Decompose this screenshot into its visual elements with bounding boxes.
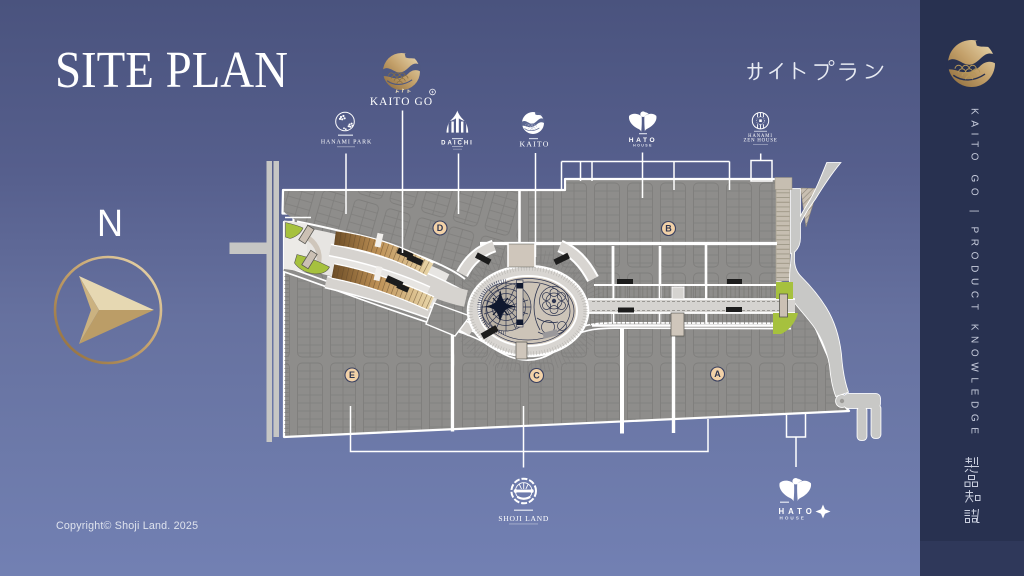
svg-text:HOUSE: HOUSE — [633, 144, 653, 148]
svg-text:C: C — [533, 371, 540, 381]
svg-text:N: N — [97, 203, 123, 245]
svg-text:SITE PLAN: SITE PLAN — [55, 42, 288, 99]
svg-text:SHOJI LAND: SHOJI LAND — [498, 514, 549, 523]
svg-text:D: D — [437, 223, 444, 233]
svg-text:KAITO: KAITO — [519, 140, 549, 149]
svg-text:ZEN HOUSE: ZEN HOUSE — [744, 139, 778, 144]
svg-text:B: B — [665, 224, 672, 234]
svg-text:Copyright© Shoji Land. 2025: Copyright© Shoji Land. 2025 — [56, 520, 198, 532]
svg-text:HANAMI PARK: HANAMI PARK — [321, 140, 372, 146]
svg-text:E: E — [349, 370, 355, 380]
svg-text:A: A — [714, 369, 721, 379]
svg-text:HOUSE: HOUSE — [780, 516, 806, 521]
svg-text:KAITO GO: KAITO GO — [370, 96, 433, 108]
svg-text:KAITO GO | PRODUCT KNOWLEDGE: KAITO GO | PRODUCT KNOWLEDGE — [969, 108, 980, 440]
svg-text:DAICHI: DAICHI — [441, 140, 474, 146]
